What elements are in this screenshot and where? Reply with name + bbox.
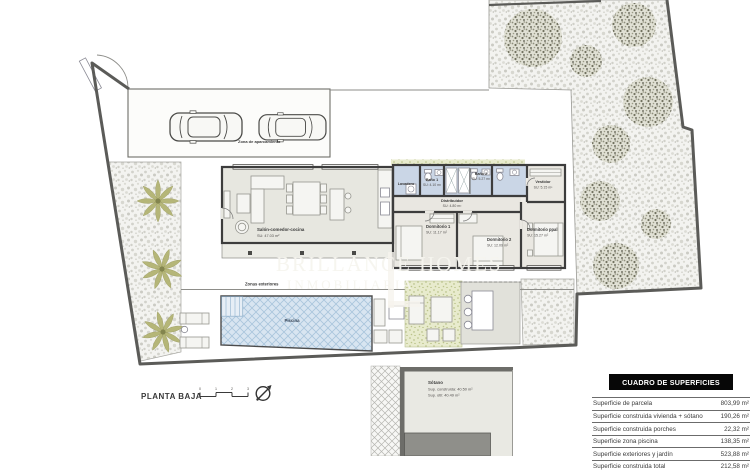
basement-stairwell: [405, 433, 491, 456]
room-area: SU: 12.09 m²: [487, 244, 509, 248]
pool: [221, 296, 372, 351]
basement-inset: Sótano Sup. construida: 40.50 m² Sup. út…: [371, 366, 513, 456]
room-label: Dormitorio 1: [426, 224, 451, 229]
room-label: Dormitorio 2: [487, 237, 512, 242]
room-area: SU: 47.03 m²: [257, 234, 280, 238]
table-row: Superficie construida porches 22,32 m²: [592, 422, 750, 435]
scale-tick: 1: [215, 387, 217, 391]
surfaces-table: CUADRO DE SUPERFICIES Superficie de parc…: [592, 374, 750, 472]
room-area: SU: 4.80 m²: [443, 204, 463, 208]
row-label: Superficie construida vivienda + sótano: [593, 413, 703, 420]
table-row: Superficie exteriores y jardín 523,88 m²: [592, 447, 750, 460]
table-row: Superficie construida total 212,58 m²: [592, 460, 750, 472]
car-1: [170, 111, 242, 143]
row-value: 212,58 m²: [721, 463, 749, 470]
scale-bar: 0 1 2 3: [199, 387, 249, 397]
row-label: Superficie construida porches: [593, 426, 676, 433]
parking-label: Zona de aparcamiento: [238, 139, 281, 144]
surfaces-table-title: CUADRO DE SUPERFICIES: [609, 374, 733, 390]
room-label: Lavadero: [398, 182, 415, 186]
row-value: 22,32 m²: [724, 426, 749, 433]
room-area: SU: 4.10 m²: [423, 183, 442, 187]
room-area: SU: 15.27 m²: [527, 234, 549, 238]
exterior-label: Zonas exteriores: [245, 282, 279, 287]
basement-built-area: Sup. construida: 40.50 m²: [428, 387, 473, 392]
room-area: SU: 11.17 m²: [426, 231, 448, 235]
room-label: Salón-comedor-cocina: [257, 227, 305, 232]
title-block: PLANTA BAJA 0 1 2 3: [141, 385, 272, 401]
room-label: Vestidor: [535, 179, 551, 184]
room-area: SU: 5.15 m²: [534, 186, 554, 190]
room-label: Baño 2: [475, 172, 487, 176]
room-area: SU: 5.27 m²: [472, 177, 491, 181]
table-row: Superficie construida vivienda + sótano …: [592, 410, 750, 423]
row-value: 523,88 m²: [721, 451, 749, 458]
row-value: 803,99 m²: [721, 400, 749, 407]
table-row: Superficie de parcela 803,99 m²: [592, 397, 750, 410]
north-indicator: [256, 385, 271, 401]
row-label: Superficie de parcela: [593, 400, 652, 407]
basement-label: Sótano: [428, 380, 443, 385]
basement-useful-area: Sup. útil: 40.49 m²: [428, 393, 460, 398]
row-label: Superficie exteriores y jardín: [593, 451, 673, 458]
lawn-terrace: [405, 281, 462, 347]
row-label: Superficie construida total: [593, 463, 665, 470]
room-label: Dormitorio ppal: [527, 227, 557, 232]
floor-title: PLANTA BAJA: [141, 392, 202, 401]
room-label: Distribuidor: [441, 198, 464, 203]
row-label: Superficie zona piscina: [593, 438, 658, 445]
site-plan-page: Zona de aparcamiento Salón-comedor-cocin…: [0, 0, 756, 456]
table-row: Superficie zona piscina 138,35 m²: [592, 435, 750, 448]
scale-tick: 2: [231, 387, 233, 391]
car-2: [259, 113, 326, 142]
scale-tick: 0: [199, 387, 201, 391]
row-value: 138,35 m²: [721, 438, 749, 445]
porch: [459, 282, 521, 344]
row-value: 190,26 m²: [721, 413, 749, 420]
pool-label: Piscina: [284, 318, 300, 323]
room-label: Baño 1: [426, 178, 438, 182]
scale-tick: 3: [247, 387, 249, 391]
surfaces-table-rows: Superficie de parcela 803,99 m² Superfic…: [592, 397, 750, 472]
